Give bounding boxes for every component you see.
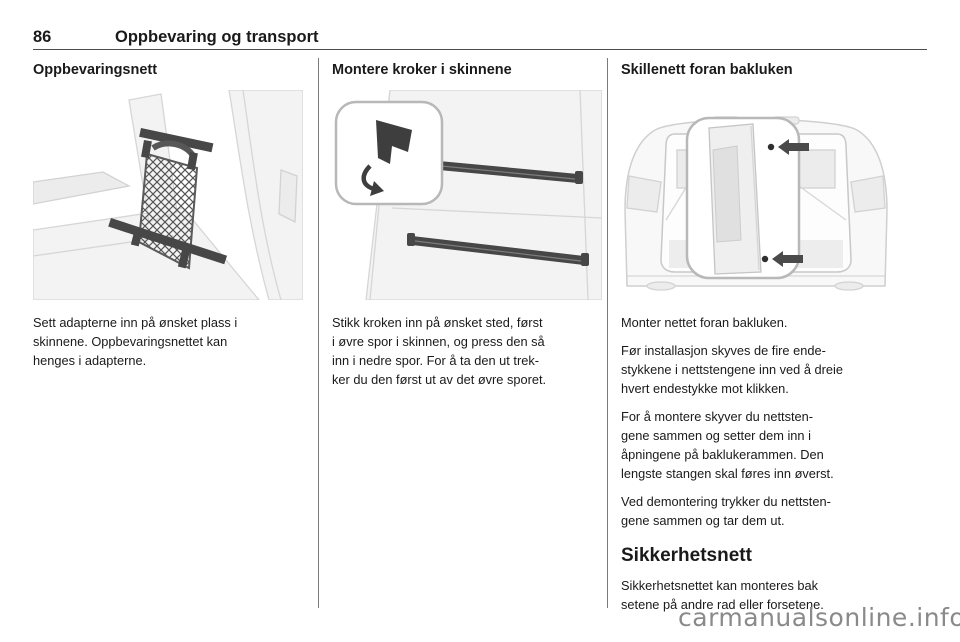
hook-rails-svg xyxy=(332,90,602,300)
paragraph: Monter nettet foran bakluken. xyxy=(621,313,895,332)
column-separator xyxy=(318,58,319,608)
net-inset xyxy=(687,118,809,278)
tailgate-net-svg xyxy=(621,90,891,300)
paragraph: Stikk kroken inn på ønsket sted, først i… xyxy=(332,313,606,389)
paragraph: Ved demontering trykker du nettsten- gen… xyxy=(621,492,895,530)
manual-page: 86 Oppbevaring og transport Oppbevarings… xyxy=(0,0,960,642)
cargo-net-svg xyxy=(33,90,303,300)
chapter-title: Oppbevaring og transport xyxy=(115,28,319,47)
section-heading: Skillenett foran bakluken xyxy=(621,62,895,78)
section-heading: Oppbevaringsnett xyxy=(33,62,307,78)
hook-rails-illustration xyxy=(332,90,602,300)
section-heading: Montere kroker i skinnene xyxy=(332,62,606,78)
tailgate-net-illustration xyxy=(621,90,891,300)
upper-attachment-point xyxy=(768,144,774,150)
header-rule xyxy=(33,49,927,50)
column-storage-net: Oppbevaringsnett xyxy=(33,60,307,379)
section-heading-safety-net: Sikkerhetsnett xyxy=(621,545,895,567)
paragraph: Før installasjon skyves de fire ende- st… xyxy=(621,341,895,398)
page-number: 86 xyxy=(33,28,51,47)
paragraph: For å montere skyver du nettsten- gene s… xyxy=(621,407,895,483)
cargo-net-illustration xyxy=(33,90,303,300)
watermark: carmanualsonline.info xyxy=(678,603,960,632)
column-hooks-in-rails: Montere kroker i skinnene xyxy=(332,60,606,398)
column-separator xyxy=(607,58,608,608)
hook-inset xyxy=(336,102,442,204)
paragraph: Sett adapterne inn på ønsket plass i ski… xyxy=(33,313,307,370)
column-net-in-front-of-tailgate: Skillenett foran bakluken xyxy=(621,60,895,623)
lower-attachment-point xyxy=(762,256,768,262)
